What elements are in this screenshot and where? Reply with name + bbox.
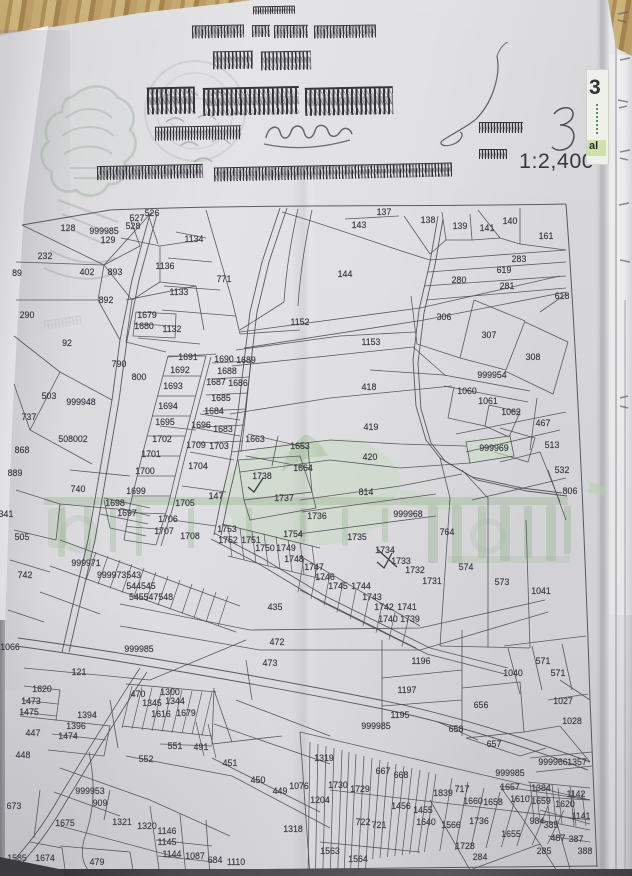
- svg-text:717: 717: [455, 784, 470, 794]
- svg-text:1749: 1749: [276, 543, 296, 553]
- svg-text:999985: 999985: [495, 768, 524, 778]
- svg-text:1474: 1474: [58, 731, 78, 741]
- svg-text:551: 551: [168, 741, 183, 751]
- svg-text:526: 526: [145, 208, 160, 218]
- svg-text:1675: 1675: [55, 818, 75, 828]
- svg-text:984: 984: [530, 816, 545, 826]
- svg-text:1110: 1110: [227, 857, 245, 867]
- svg-text:618: 618: [555, 291, 570, 301]
- svg-text:1473: 1473: [21, 696, 41, 706]
- svg-text:1745: 1745: [328, 581, 348, 591]
- svg-text:92: 92: [62, 338, 72, 348]
- svg-text:290: 290: [20, 310, 35, 320]
- svg-text:1321: 1321: [112, 817, 132, 827]
- svg-text:999948: 999948: [66, 397, 95, 407]
- svg-text:140: 140: [503, 216, 518, 226]
- svg-text:999954: 999954: [477, 370, 506, 380]
- svg-text:764: 764: [440, 527, 455, 537]
- svg-text:1455: 1455: [413, 805, 433, 815]
- svg-text:385: 385: [544, 820, 559, 830]
- svg-text:999953: 999953: [75, 786, 104, 796]
- svg-text:308: 308: [526, 352, 541, 362]
- svg-text:473: 473: [263, 658, 278, 668]
- svg-text:1318: 1318: [283, 824, 303, 834]
- svg-text:1728: 1728: [455, 841, 475, 851]
- svg-text:451: 451: [223, 758, 238, 768]
- svg-text:1752: 1752: [218, 535, 238, 545]
- svg-text:814: 814: [359, 487, 374, 497]
- svg-text:1736: 1736: [469, 816, 489, 826]
- svg-text:1145: 1145: [158, 837, 177, 847]
- svg-text:1694: 1694: [158, 401, 178, 411]
- svg-text:503: 503: [42, 391, 57, 401]
- svg-text:1566: 1566: [441, 820, 461, 830]
- svg-text:307: 307: [482, 330, 497, 340]
- svg-text:528: 528: [126, 221, 141, 231]
- svg-text:144: 144: [338, 269, 353, 279]
- svg-text:806: 806: [563, 486, 578, 496]
- svg-text:1703: 1703: [209, 441, 229, 451]
- svg-text:1685: 1685: [211, 393, 231, 403]
- svg-text:1060: 1060: [457, 386, 477, 396]
- svg-text:571: 571: [551, 668, 566, 678]
- svg-text:1689: 1689: [236, 355, 256, 365]
- svg-text:1144: 1144: [163, 849, 182, 859]
- svg-text:1142: 1142: [567, 789, 586, 799]
- svg-text:545547548: 545547548: [129, 592, 173, 602]
- svg-text:435: 435: [268, 602, 283, 612]
- svg-text:1196: 1196: [412, 656, 431, 666]
- svg-text:1701: 1701: [141, 449, 161, 459]
- svg-text:684: 684: [208, 855, 223, 865]
- svg-text:1062: 1062: [501, 407, 521, 417]
- svg-text:1729: 1729: [350, 784, 370, 794]
- svg-text:467: 467: [536, 418, 551, 428]
- svg-text:1620: 1620: [32, 684, 52, 694]
- svg-text:505: 505: [15, 532, 30, 542]
- svg-text:472: 472: [270, 637, 285, 647]
- svg-text:1345: 1345: [142, 698, 162, 708]
- svg-text:1394: 1394: [77, 710, 97, 720]
- svg-text:1699: 1699: [126, 486, 146, 496]
- svg-text:1396: 1396: [66, 721, 86, 731]
- svg-text:161: 161: [539, 231, 554, 241]
- svg-text:1087: 1087: [185, 851, 205, 861]
- svg-text:1674: 1674: [35, 853, 55, 863]
- svg-text:1680: 1680: [134, 321, 154, 331]
- svg-text:1750: 1750: [255, 543, 275, 553]
- svg-text:447: 447: [26, 728, 41, 738]
- svg-text:284: 284: [473, 852, 488, 862]
- svg-text:1195: 1195: [391, 710, 410, 720]
- svg-text:479: 479: [90, 857, 105, 867]
- svg-text:999985: 999985: [361, 721, 390, 731]
- svg-text:1679: 1679: [176, 708, 196, 718]
- svg-text:1735: 1735: [347, 532, 367, 542]
- svg-text:508002: 508002: [58, 434, 87, 444]
- svg-text:1754: 1754: [283, 529, 303, 539]
- svg-text:1693: 1693: [163, 381, 183, 391]
- svg-text:1684: 1684: [204, 406, 224, 416]
- svg-text:306: 306: [437, 312, 452, 322]
- svg-text:1753: 1753: [217, 524, 237, 534]
- svg-text:1700: 1700: [135, 466, 155, 476]
- svg-text:232: 232: [38, 251, 53, 261]
- svg-text:889: 889: [8, 468, 23, 478]
- svg-text:1659: 1659: [531, 796, 551, 806]
- svg-text:1691: 1691: [178, 352, 198, 362]
- svg-text:999969: 999969: [479, 443, 508, 453]
- svg-text:341: 341: [0, 509, 13, 519]
- svg-text:1204: 1204: [310, 795, 330, 805]
- svg-text:1653: 1653: [290, 441, 310, 451]
- svg-text:89: 89: [12, 268, 22, 278]
- svg-text:1134: 1134: [185, 234, 204, 244]
- svg-text:1136: 1136: [156, 261, 175, 271]
- svg-text:1066: 1066: [0, 642, 20, 652]
- svg-text:1133: 1133: [170, 287, 189, 297]
- svg-text:657: 657: [487, 739, 502, 749]
- svg-text:1730: 1730: [328, 780, 348, 790]
- svg-text:1655: 1655: [501, 829, 521, 839]
- svg-text:1707: 1707: [154, 526, 174, 536]
- svg-text:1748: 1748: [284, 554, 304, 564]
- svg-text:1040: 1040: [503, 668, 523, 678]
- svg-text:491: 491: [194, 742, 209, 752]
- svg-text:1687: 1687: [206, 377, 226, 387]
- svg-text:571: 571: [536, 656, 551, 666]
- svg-text:532: 532: [555, 465, 570, 475]
- svg-text:1132: 1132: [163, 324, 182, 334]
- svg-text:143: 143: [352, 220, 367, 230]
- svg-text:1076: 1076: [289, 781, 309, 791]
- svg-text:740: 740: [71, 484, 86, 494]
- svg-text:138: 138: [421, 215, 436, 225]
- svg-text:1344: 1344: [165, 696, 185, 706]
- svg-text:1741: 1741: [397, 602, 417, 612]
- svg-text:737: 737: [22, 412, 37, 422]
- svg-text:1696: 1696: [191, 420, 211, 430]
- svg-text:1679: 1679: [137, 310, 157, 320]
- svg-text:1663: 1663: [245, 434, 265, 444]
- svg-text:1704: 1704: [188, 461, 208, 471]
- svg-text:667: 667: [376, 766, 391, 776]
- svg-text:1146: 1146: [158, 826, 177, 836]
- svg-text:449: 449: [273, 786, 288, 796]
- svg-text:1747: 1747: [304, 562, 324, 572]
- svg-text:1705: 1705: [175, 498, 195, 508]
- svg-text:800: 800: [132, 372, 147, 382]
- svg-text:1742: 1742: [374, 602, 394, 612]
- svg-text:450: 450: [251, 775, 266, 785]
- svg-text:1688: 1688: [217, 366, 237, 376]
- svg-text:656: 656: [474, 700, 489, 710]
- svg-text:1739: 1739: [400, 614, 420, 624]
- svg-text:1475: 1475: [19, 707, 39, 717]
- svg-text:281: 281: [500, 281, 515, 291]
- svg-text:1690: 1690: [214, 354, 234, 364]
- svg-text:137: 137: [377, 207, 392, 217]
- svg-text:1706: 1706: [158, 514, 178, 524]
- svg-text:448: 448: [16, 750, 31, 760]
- svg-text:1027: 1027: [553, 696, 573, 706]
- svg-text:771: 771: [217, 274, 232, 284]
- svg-text:721: 721: [372, 820, 387, 830]
- svg-text:673: 673: [7, 801, 22, 811]
- svg-text:1702: 1702: [152, 434, 172, 444]
- svg-text:513: 513: [545, 440, 560, 450]
- svg-text:999985: 999985: [124, 644, 153, 654]
- svg-text:1153: 1153: [362, 337, 381, 347]
- svg-text:121: 121: [72, 667, 87, 677]
- svg-text:1384: 1384: [531, 783, 551, 793]
- svg-text:1610: 1610: [510, 794, 530, 804]
- svg-text:387: 387: [569, 834, 584, 844]
- svg-text:1660: 1660: [463, 796, 483, 806]
- svg-text:147: 147: [209, 491, 224, 501]
- svg-text:285: 285: [537, 846, 552, 856]
- svg-text:552: 552: [139, 754, 154, 764]
- svg-text:1697: 1697: [117, 508, 137, 518]
- svg-text:487: 487: [551, 833, 566, 843]
- svg-text:1152: 1152: [291, 317, 310, 327]
- svg-text:1736: 1736: [307, 511, 327, 521]
- svg-text:1683: 1683: [213, 424, 233, 434]
- svg-text:1357: 1357: [567, 757, 587, 767]
- svg-text:1657: 1657: [500, 782, 520, 792]
- svg-text:999973543: 999973543: [97, 570, 141, 580]
- svg-text:1698: 1698: [105, 498, 125, 508]
- svg-text:1708: 1708: [180, 531, 200, 541]
- svg-text:141: 141: [480, 223, 495, 233]
- svg-text:909: 909: [93, 798, 108, 808]
- svg-text:1456: 1456: [391, 801, 411, 811]
- svg-text:999968: 999968: [393, 509, 422, 519]
- svg-text:1640: 1640: [416, 817, 436, 827]
- svg-text:402: 402: [80, 267, 95, 277]
- svg-text:1658: 1658: [483, 797, 503, 807]
- svg-text:1319: 1319: [314, 753, 334, 763]
- svg-text:1744: 1744: [351, 581, 371, 591]
- svg-text:283: 283: [512, 254, 527, 264]
- svg-text:1041: 1041: [531, 586, 551, 596]
- svg-text:999966: 999966: [538, 757, 567, 767]
- svg-text:129: 129: [101, 235, 116, 245]
- svg-text:1692: 1692: [170, 365, 190, 375]
- svg-text:280: 280: [452, 275, 467, 285]
- svg-text:619: 619: [497, 265, 512, 275]
- svg-text:892: 892: [99, 295, 114, 305]
- svg-text:1563: 1563: [320, 846, 340, 856]
- svg-text:1061: 1061: [478, 396, 498, 406]
- svg-text:1028: 1028: [562, 716, 582, 726]
- svg-text:658: 658: [449, 724, 464, 734]
- svg-text:1141: 1141: [572, 811, 591, 821]
- svg-text:1197: 1197: [398, 685, 417, 695]
- svg-text:128: 128: [61, 223, 76, 233]
- svg-text:999971: 999971: [71, 558, 100, 568]
- svg-text:573: 573: [495, 577, 510, 587]
- svg-text:419: 419: [364, 422, 379, 432]
- svg-text:1616: 1616: [151, 709, 171, 719]
- svg-text:388: 388: [578, 846, 593, 856]
- svg-text:420: 420: [363, 452, 378, 462]
- svg-text:418: 418: [362, 382, 377, 392]
- svg-text:139: 139: [453, 221, 468, 231]
- svg-text:1320: 1320: [137, 821, 157, 831]
- svg-text:574: 574: [459, 562, 474, 572]
- svg-text:1709: 1709: [186, 440, 206, 450]
- svg-text:868: 868: [15, 445, 30, 455]
- svg-text:742: 742: [18, 570, 33, 580]
- svg-text:668: 668: [394, 770, 409, 780]
- svg-text:1740: 1740: [378, 614, 398, 624]
- svg-text:1743: 1743: [362, 592, 382, 602]
- svg-text:1695: 1695: [155, 417, 175, 427]
- svg-text:722: 722: [356, 817, 371, 827]
- svg-text:1620: 1620: [555, 799, 575, 809]
- svg-text:1839: 1839: [433, 788, 453, 798]
- svg-text:544545: 544545: [126, 581, 155, 591]
- svg-text:893: 893: [108, 267, 123, 277]
- svg-text:1686: 1686: [228, 378, 248, 388]
- svg-text:790: 790: [112, 359, 127, 369]
- svg-text:1564: 1564: [348, 854, 368, 864]
